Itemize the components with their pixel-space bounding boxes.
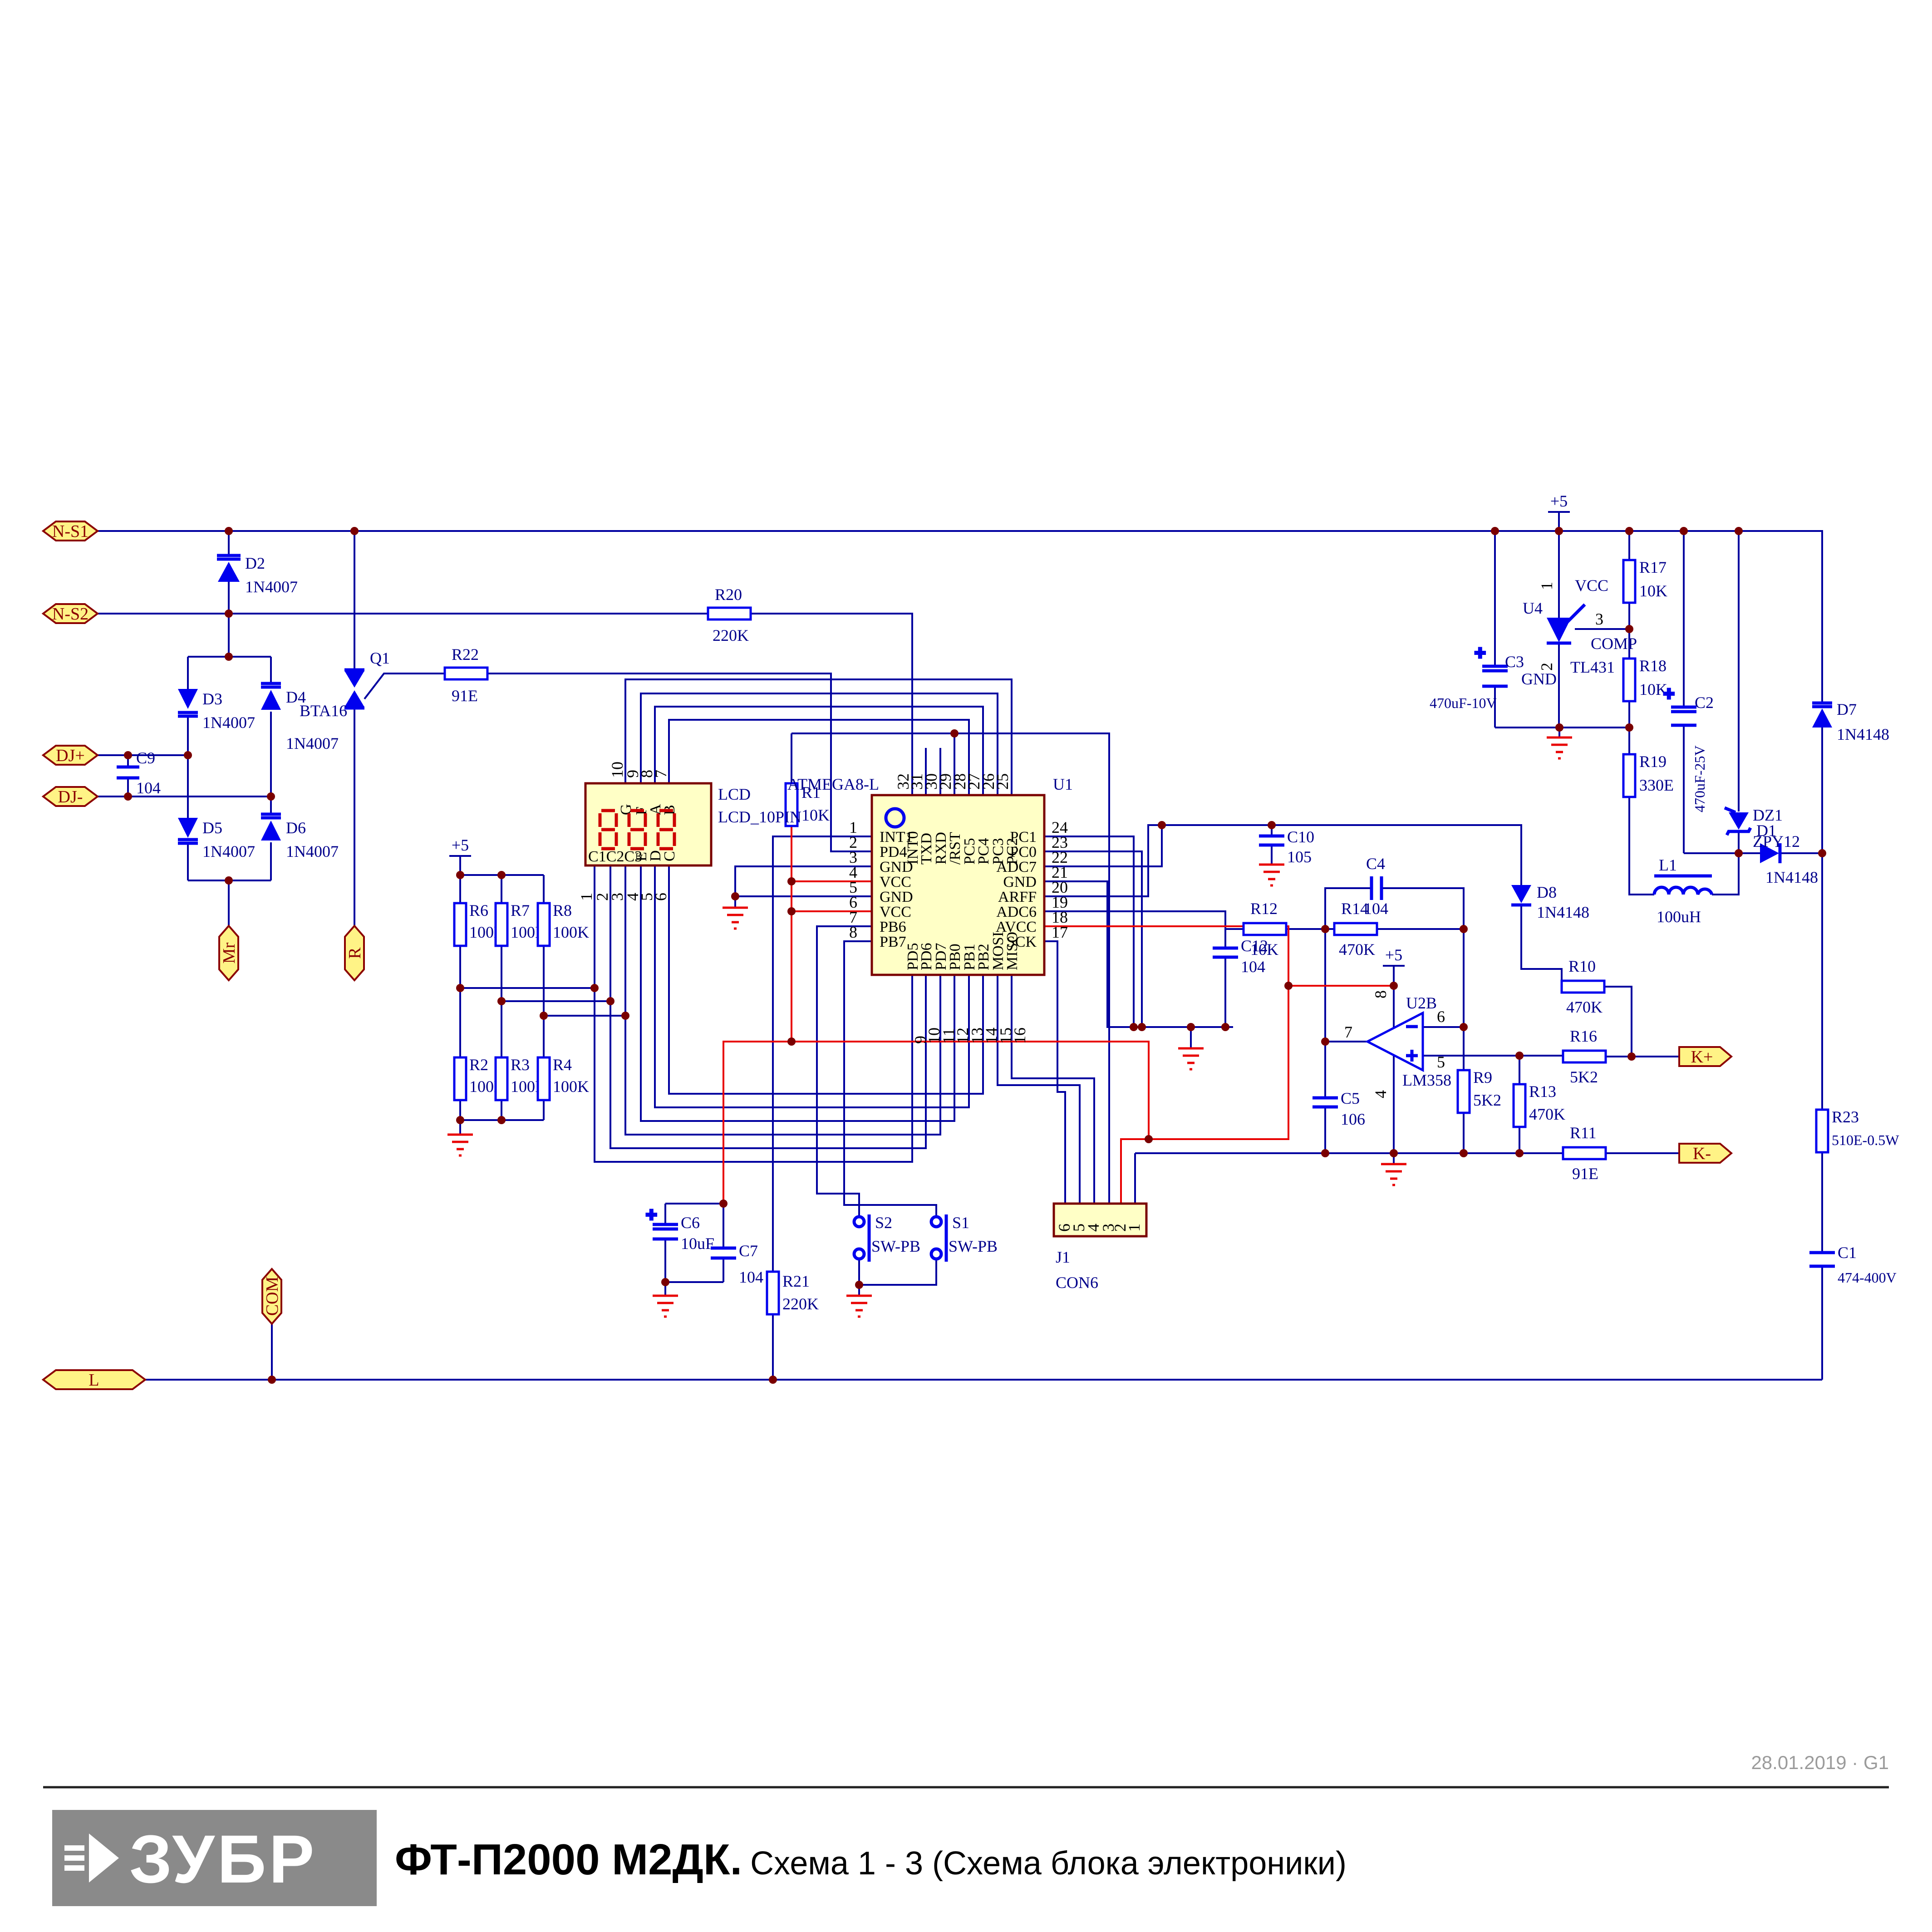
flag-label: Mr (220, 942, 239, 964)
date-revision: 28.01.2019 · G1 (1751, 1752, 1889, 1773)
value: SW-PB (871, 1237, 920, 1255)
value: 1N4007 (202, 713, 255, 732)
part: LCD_10PIN (718, 808, 801, 826)
segment-label: C (661, 851, 678, 861)
value: 470uF-25V (1691, 745, 1708, 812)
value: 105 (1287, 848, 1312, 866)
pin-name: GND (880, 859, 913, 875)
pin-name: VCC (880, 874, 911, 890)
ref: LCD (718, 785, 751, 803)
ref: R17 (1639, 558, 1667, 576)
flag-com: COM (262, 1269, 282, 1324)
ref: R12 (1250, 900, 1278, 918)
ref: D7 (1837, 700, 1857, 718)
value: 220K (713, 626, 749, 644)
ref: R4 (553, 1056, 572, 1074)
ref: L1 (1659, 856, 1677, 874)
value: BTA16 (300, 702, 347, 720)
flag-km: K- (1679, 1144, 1731, 1163)
ref: C6 (681, 1214, 700, 1232)
ref: C7 (739, 1242, 758, 1260)
sheet-title-model: ФТ-П2000 М2ДК. (395, 1835, 742, 1884)
flag-ns2: N-S2 (43, 604, 98, 624)
value: 5K2 (1570, 1068, 1598, 1086)
pin-name: ARFF (998, 889, 1037, 905)
value: 104 (739, 1268, 763, 1286)
value: 1N4148 (1537, 903, 1589, 921)
ref: C10 (1287, 828, 1314, 846)
pin-number: 16 (1011, 1027, 1029, 1044)
pin-number: 7 (1344, 1023, 1352, 1041)
pin-name: PC0 (1010, 844, 1037, 860)
ref: R23 (1832, 1108, 1859, 1126)
ref: R20 (715, 585, 742, 604)
ref: D5 (202, 819, 222, 837)
ref: C1 (1838, 1244, 1857, 1262)
pin-name: VCC (1575, 576, 1608, 595)
part: TL431 (1570, 658, 1615, 676)
pin-name: INT1 (880, 829, 913, 846)
pin-number: 25 (993, 773, 1012, 790)
pin-name: MISO (1004, 932, 1021, 970)
ref: C3 (1505, 653, 1524, 671)
part: ATMEGA8-L (787, 775, 879, 793)
value: 91E (452, 687, 478, 705)
flag-r: R (345, 926, 364, 980)
pin-number: 7 (652, 770, 670, 778)
ref: R22 (452, 645, 479, 664)
pin-number: 6 (1437, 1008, 1445, 1026)
pin-number: 8 (849, 923, 857, 941)
plus-sign: + (1664, 683, 1674, 704)
brand-name: ЗУБР (129, 1821, 317, 1897)
value: 106 (1341, 1110, 1365, 1128)
value: 220K (782, 1295, 819, 1313)
ref: U2B (1406, 994, 1437, 1012)
value: 104 (136, 779, 161, 797)
pin-name: ADC7 (996, 859, 1037, 875)
ref: R8 (553, 901, 572, 919)
flag-label: K+ (1691, 1047, 1713, 1067)
ref: R6 (469, 901, 488, 919)
pin-name: VCC (880, 904, 911, 920)
value: 330E (1639, 776, 1674, 794)
ref: U1 (1053, 775, 1073, 793)
value: 100K (553, 923, 589, 941)
value: 100uH (1657, 908, 1701, 926)
ref: U4 (1523, 599, 1543, 617)
ref: C2 (1695, 693, 1714, 712)
flag-label: COM (263, 1277, 282, 1316)
flag-label: N-S2 (52, 605, 88, 624)
pin-name: GND (1521, 670, 1557, 688)
plus-sign: + (1475, 643, 1485, 663)
value: 510E-0.5W (1832, 1132, 1899, 1148)
pin-number: 17 (1052, 923, 1068, 941)
pin-number: 1 (577, 893, 595, 901)
pin-name: PB7 (880, 934, 906, 950)
ref: C12 (1241, 937, 1268, 955)
plus5-label: +5 (452, 836, 469, 854)
flag-label: N-S1 (52, 522, 88, 541)
ref: J1 (1056, 1248, 1070, 1266)
value: 470K (1339, 940, 1375, 959)
value: 1N4007 (245, 578, 298, 596)
ref: S1 (952, 1214, 969, 1232)
value: 474-400V (1838, 1269, 1897, 1286)
ref: R10 (1568, 957, 1596, 975)
plus5-label: +5 (1385, 946, 1402, 964)
flag-djm: DJ- (43, 787, 98, 806)
part: CON6 (1056, 1273, 1098, 1292)
ref: S2 (875, 1214, 892, 1232)
value: 5K2 (1473, 1091, 1501, 1109)
ref: R16 (1570, 1027, 1597, 1045)
flag-kp: K+ (1679, 1047, 1731, 1067)
pin-number: 5 (1437, 1053, 1445, 1071)
pin-name: GND (880, 889, 913, 905)
value: 1N4007 (286, 734, 339, 752)
flag-label: R (345, 947, 364, 959)
ref: R11 (1570, 1124, 1597, 1142)
value: 10K (801, 806, 830, 824)
flag-djp: DJ+ (43, 746, 98, 765)
ref: D8 (1537, 883, 1557, 901)
pin-number: 1 (1538, 582, 1556, 590)
ref: R19 (1639, 752, 1667, 771)
ref: R7 (511, 901, 530, 919)
ref: C5 (1341, 1089, 1360, 1107)
value: 10K (1639, 680, 1667, 698)
ref: D3 (202, 690, 222, 708)
value: 470uF-10V (1430, 695, 1497, 711)
value: 10uF (681, 1234, 714, 1253)
pin-name: PC1 (1010, 829, 1037, 846)
value: 104 (1241, 958, 1265, 976)
ref: DZ1 (1753, 806, 1783, 824)
flag-label: K- (1693, 1144, 1711, 1163)
value: 104 (1364, 900, 1388, 918)
flag-label: DJ- (58, 787, 83, 806)
pin-name: PB6 (880, 919, 906, 935)
ref: R3 (511, 1056, 530, 1074)
flag-mr: Mr (219, 926, 239, 980)
ref: D2 (245, 554, 265, 572)
ref: C9 (136, 749, 155, 767)
ref: D6 (286, 819, 306, 837)
pin-number: 3 (1595, 610, 1603, 628)
sheet-title-subtitle: Схема 1 - 3 (Схема блока электроники) (750, 1845, 1347, 1882)
ref: R2 (469, 1056, 488, 1074)
value: 1N4007 (286, 842, 339, 860)
ref: R18 (1639, 657, 1667, 675)
value: 470K (1529, 1105, 1565, 1123)
value: ZPY12 (1753, 832, 1800, 850)
value: SW-PB (949, 1237, 998, 1255)
pin-number: 1 (1125, 1224, 1143, 1232)
pin-name: PD4 (880, 844, 907, 860)
pin-name: GND (1003, 874, 1037, 890)
value: 470K (1566, 998, 1603, 1016)
flag-label: L (88, 1371, 99, 1390)
pin-number: 4 (1372, 1090, 1390, 1098)
ref: Q1 (370, 649, 390, 667)
ref: R21 (782, 1272, 810, 1290)
value: 91E (1572, 1165, 1598, 1183)
value: 100K (553, 1077, 589, 1096)
plus5-label: +5 (1550, 492, 1568, 510)
ref: R9 (1473, 1068, 1492, 1086)
value: 1N4148 (1765, 868, 1818, 886)
flag-l: L (43, 1370, 145, 1390)
part: LM358 (1402, 1071, 1451, 1089)
schematic-canvas: +5 +5 +5 N-S1 N-S2 DJ+ DJ- Mr R COM L K+… (0, 0, 1932, 1932)
plus-sign: + (646, 1204, 657, 1225)
ref: C4 (1366, 855, 1385, 873)
pin-name: ADC6 (996, 904, 1037, 920)
value: 10K (1639, 582, 1667, 600)
ref: R13 (1529, 1082, 1556, 1101)
plus5-icon: +5 (449, 836, 471, 856)
value: 1N4007 (202, 842, 255, 860)
pin-number: 6 (652, 893, 670, 901)
value: 1N4148 (1837, 725, 1889, 743)
brand-logo: ЗУБР (52, 1810, 377, 1906)
flag-label: DJ+ (56, 746, 85, 765)
flag-ns1: N-S1 (43, 521, 98, 541)
pin-name: COMP (1591, 634, 1637, 653)
pin-number: 8 (1372, 990, 1390, 998)
